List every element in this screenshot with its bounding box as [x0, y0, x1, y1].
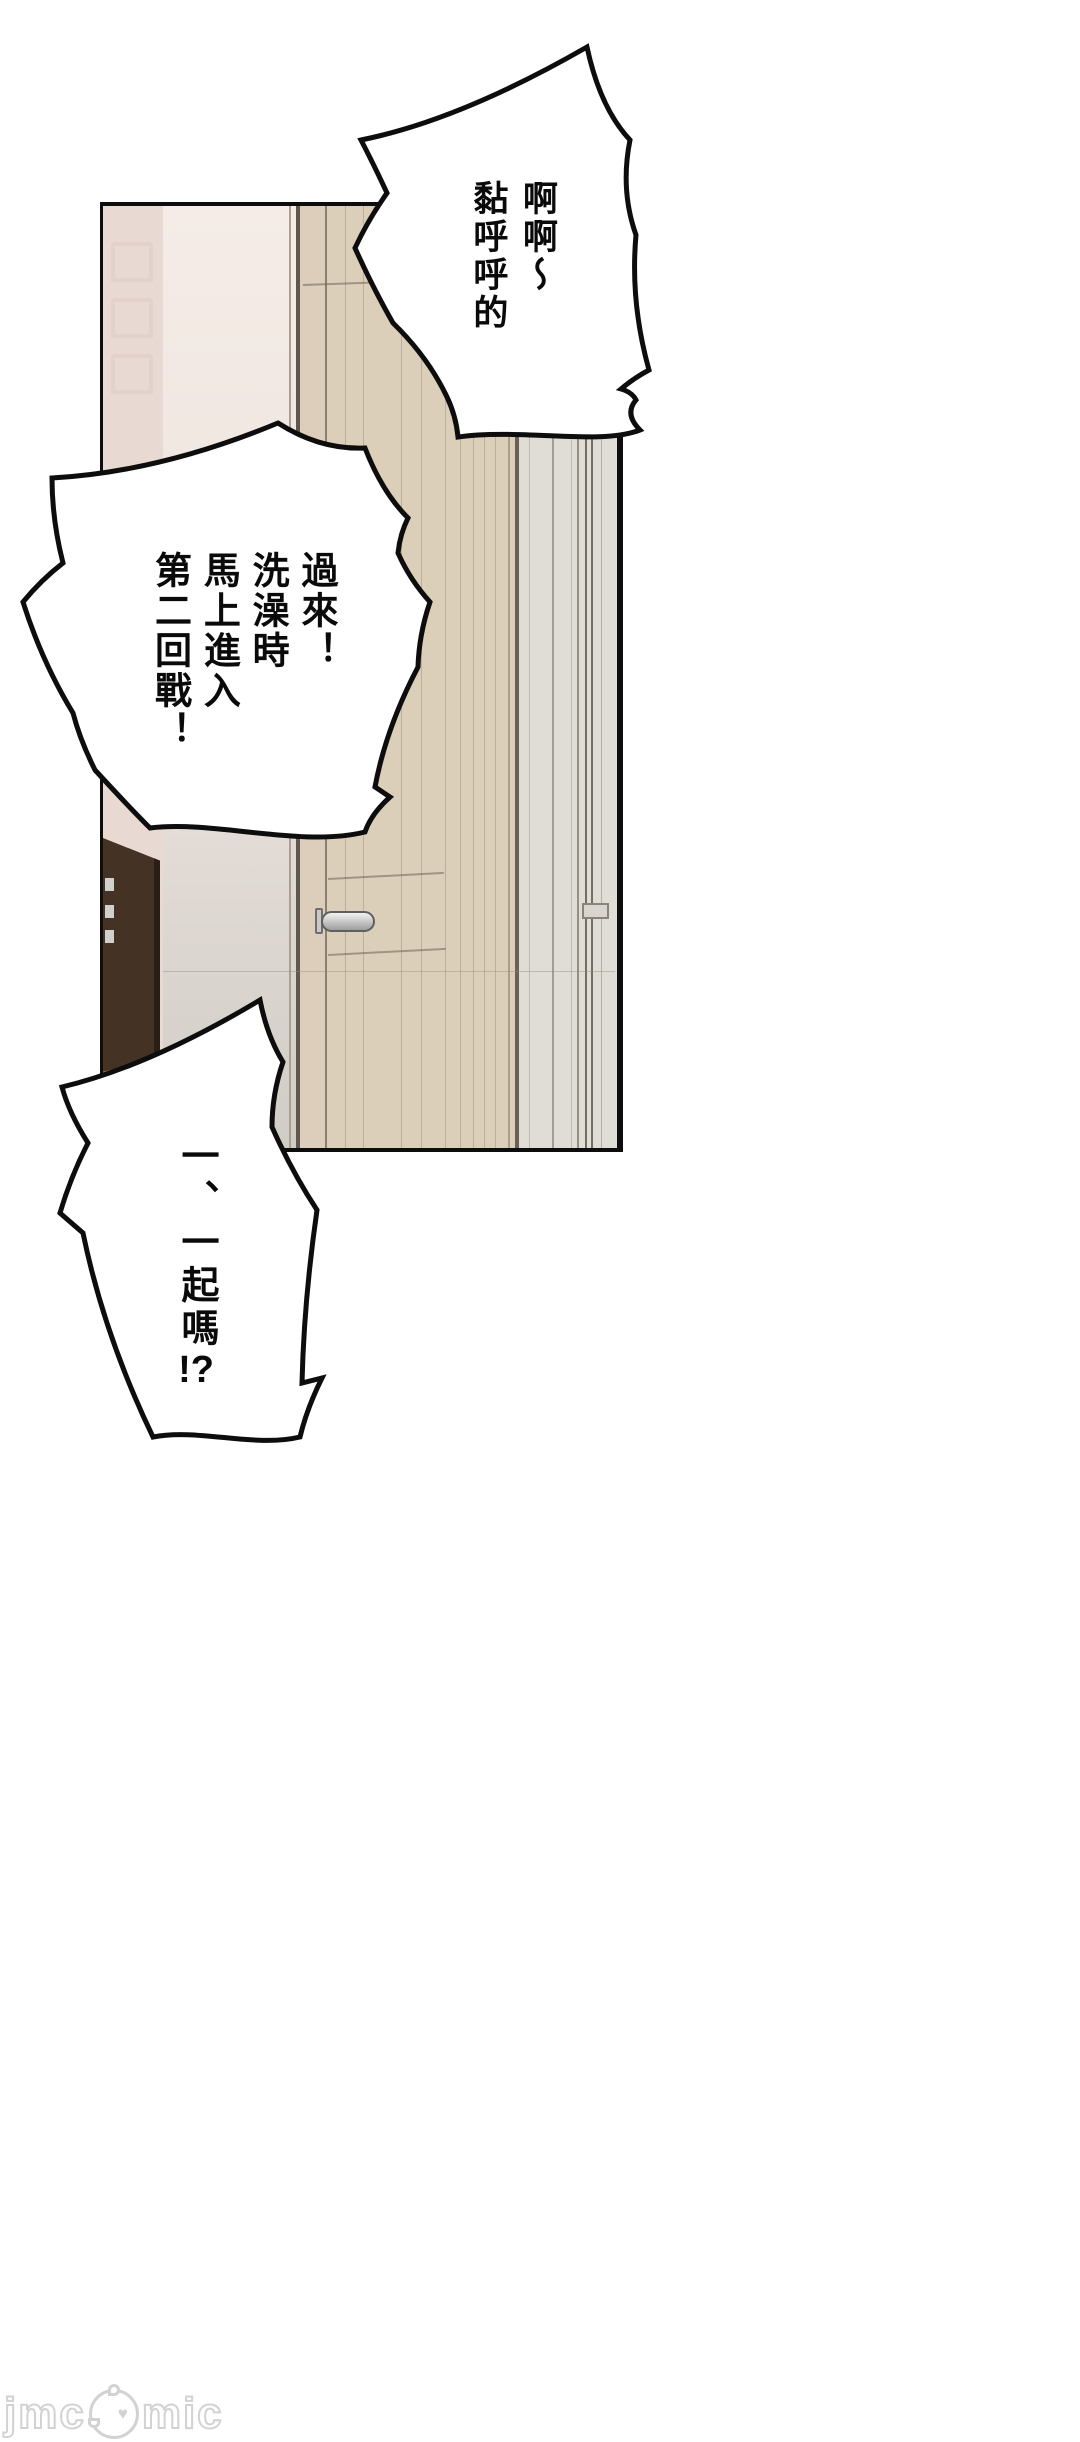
wall-seam-line — [163, 971, 615, 972]
heart-icon: ♥ — [118, 2404, 130, 2424]
watermark-jmcomic: jmc ♥ mic — [4, 2386, 224, 2442]
dark-cabinet — [103, 838, 160, 1090]
speech-text-together: 一、一起嗎!? — [165, 1136, 220, 1401]
speech-text-sticky: 啊啊～黏呼呼的 — [452, 180, 562, 415]
glass-line — [591, 206, 593, 1148]
door-handle — [321, 911, 375, 932]
door-grain-line — [345, 206, 346, 1148]
chick-beak-icon — [88, 2418, 100, 2428]
wall-meander-pattern — [111, 298, 153, 338]
door-grain-line — [445, 206, 446, 1148]
cabinet-handle — [105, 930, 114, 943]
glass-line — [571, 206, 572, 1148]
door-grain-line — [401, 206, 402, 1148]
cabinet-handle — [105, 878, 114, 891]
glass-line — [577, 206, 579, 1148]
glass-line — [601, 206, 602, 1148]
watermark-text-left: jmc — [4, 2389, 86, 2439]
cabinet-handle — [105, 905, 114, 918]
watermark-text-right: mic — [142, 2389, 224, 2439]
door-grain-line — [363, 206, 364, 1148]
wall-meander-pattern — [111, 354, 153, 394]
chick-face-icon: ♥ — [89, 2389, 139, 2439]
chick-tuft-icon — [108, 2384, 120, 2396]
wall-meander-pattern — [111, 242, 153, 282]
door-grain-line — [421, 206, 422, 1148]
glass-line — [585, 206, 587, 1148]
speech-text-round-two: 過來！洗澡時馬上進入第二回戰！ — [135, 551, 340, 813]
door-closer-bracket — [582, 903, 609, 919]
